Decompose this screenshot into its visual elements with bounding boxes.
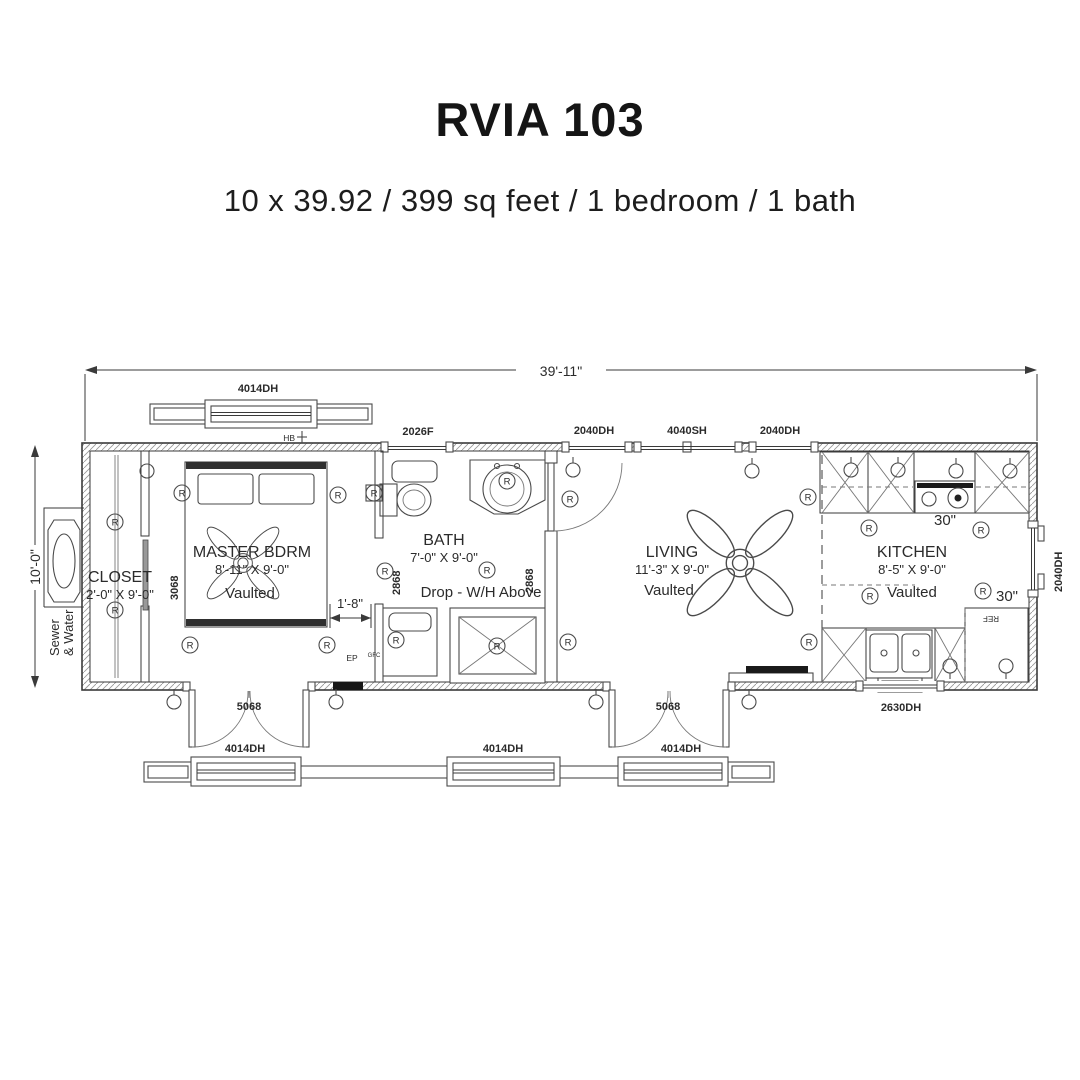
french-door-1: 5068 [183,681,315,747]
porch-window-1: 4014DH [191,743,301,786]
window-2026f: 2026F [381,426,453,453]
svg-text:KITCHEN: KITCHEN [877,544,947,561]
bath-vanity [392,461,437,482]
svg-text:Vaulted: Vaulted [225,585,275,602]
svg-text:4014DH: 4014DH [483,743,523,755]
svg-text:EP: EP [346,653,358,663]
floorplan-page: { "header": { "title": "RVIA 103", "subt… [0,0,1080,1080]
svg-text:2'-0" X 9'-0": 2'-0" X 9'-0" [86,587,154,602]
floor-plan-drawing: R 39'-11" 10'-0" [0,0,1080,1080]
svg-text:Drop - W/H Above: Drop - W/H Above [421,584,542,601]
window-2630dh: 2630DH [856,681,944,714]
svg-text:11'-3" X 9'-0": 11'-3" X 9'-0" [635,562,709,577]
french-door-2: 5068 [603,681,735,747]
svg-text:4014DH: 4014DH [661,743,701,755]
svg-text:1'-8": 1'-8" [337,596,363,611]
porch-window-2: 4014DH [447,743,560,786]
window-2040dh-top-1: 2040DH [562,425,632,453]
svg-text:2630DH: 2630DH [881,702,921,714]
room-label-bath: BATH 7'-0" X 9'-0" Drop - W/H Above [410,532,541,601]
room-label-kitchen: KITCHEN 8'-5" X 9'-0" Vaulted [877,544,947,601]
range: 30" [915,481,975,529]
washer-dryer [383,608,437,676]
svg-text:LIVING: LIVING [646,544,698,561]
door-label-3068: 3068 [169,576,181,600]
dimension-overall-depth: 10'-0" [27,445,43,688]
svg-text:Vaulted: Vaulted [887,584,937,601]
door-label-5068-2: 5068 [656,701,680,713]
svg-text:10'-0": 10'-0" [27,549,43,585]
svg-text:4040SH: 4040SH [667,425,707,437]
svg-text:Vaulted: Vaulted [644,582,694,599]
svg-text:2040DH: 2040DH [574,425,614,437]
hose-bib: HB [283,431,307,443]
utilities-label-1: Sewer [47,618,62,656]
fridge-width-label: 30" [996,588,1018,605]
porch-rail: 4014DH 4014DH 4014DH [144,743,774,786]
svg-text:39'-11": 39'-11" [540,363,582,379]
utilities-label-2: & Water [61,609,76,656]
door-label-5068-1: 5068 [237,701,261,713]
electrical-panel: EP [333,653,363,690]
svg-text:CLOSET: CLOSET [88,569,152,586]
svg-text:8'-5" X 9'-0": 8'-5" X 9'-0" [878,562,946,577]
sewer-water-hookup: Sewer & Water [44,508,84,656]
range-width-label: 30" [934,512,956,529]
svg-text:BATH: BATH [423,532,464,549]
room-label-living: LIVING 11'-3" X 9'-0" Vaulted [635,544,709,599]
media-console [729,666,813,682]
fridge-label: REF [983,614,999,623]
svg-text:2040DH: 2040DH [760,425,800,437]
svg-text:4014DH: 4014DH [238,383,278,395]
porch-window-3: 4014DH [618,743,728,786]
window-4014dh-top: 4014DH [150,383,372,428]
closet-partition: 3068 [115,451,181,682]
svg-text:8'-11" X 9'-0": 8'-11" X 9'-0" [215,562,289,577]
window-2040dh-top-2: 2040DH [749,425,818,453]
svg-text:MASTER BDRM: MASTER BDRM [193,544,311,561]
svg-text:7'-0" X 9'-0": 7'-0" X 9'-0" [410,550,478,565]
refrigerator: REF 30" [965,588,1028,682]
svg-text:2040DH: 2040DH [1053,552,1065,592]
svg-text:2026F: 2026F [402,426,433,438]
window-2040dh-right: 2040DH [1028,521,1065,597]
room-label-closet: CLOSET 2'-0" X 9'-0" [86,569,154,602]
window-4040sh: 4040SH [634,425,742,453]
dimension-bed-clearance: 1'-8" [330,596,371,628]
svg-text:HB: HB [283,433,295,443]
svg-text:4014DH: 4014DH [225,743,265,755]
gfci-label: GFC [368,653,381,659]
